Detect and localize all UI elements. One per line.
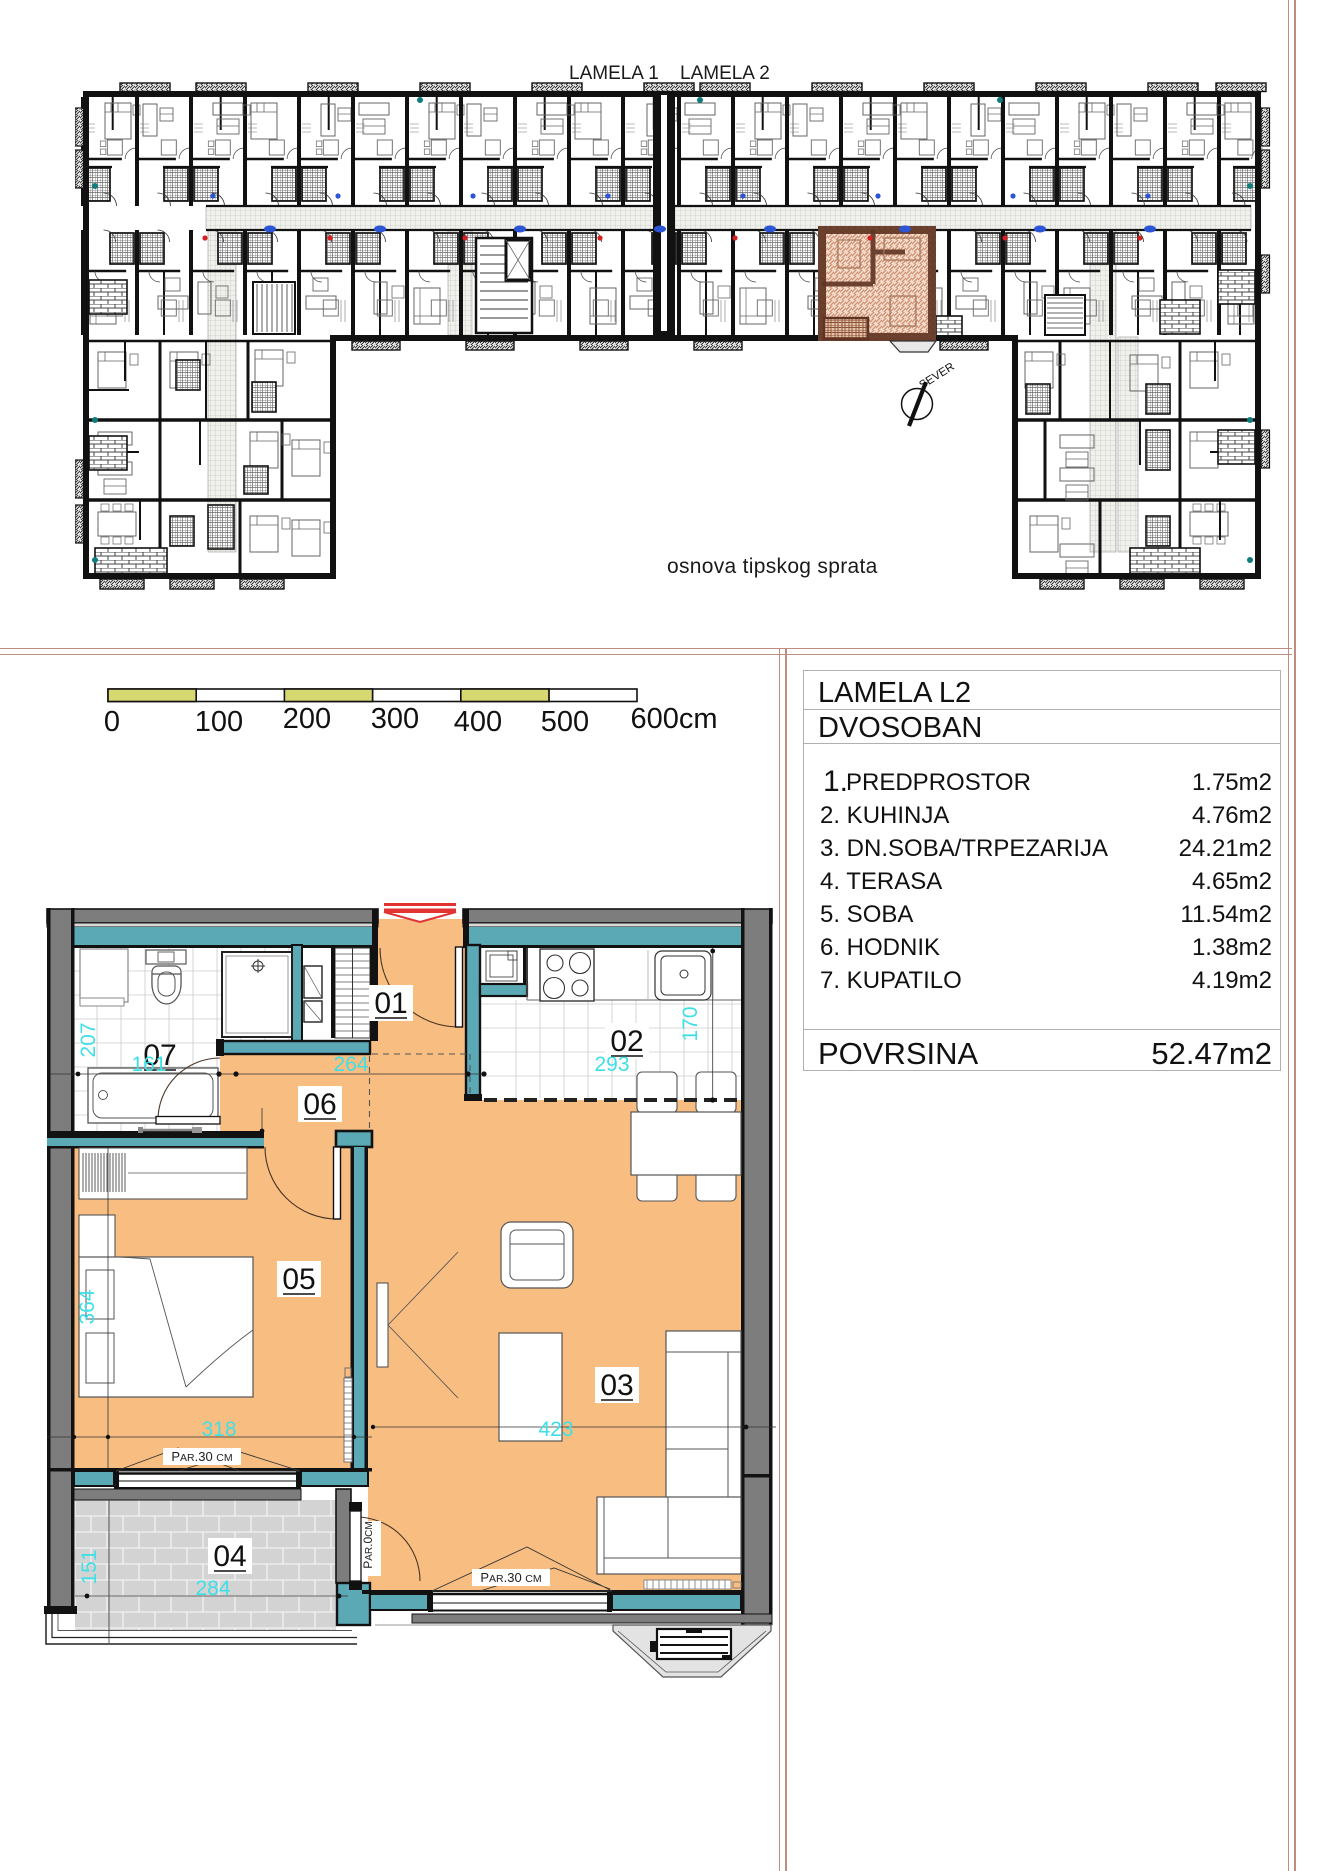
svg-text:100: 100 [195,706,243,738]
svg-text:170: 170 [679,1006,702,1041]
svg-text:318: 318 [201,1418,236,1441]
svg-text:293: 293 [594,1053,629,1076]
svg-text:0: 0 [104,706,120,738]
svg-text:06: 06 [303,1088,336,1121]
svg-text:PAR.30 CM: PAR.30 CM [171,1449,232,1464]
svg-text:161: 161 [131,1053,166,1076]
svg-text:03: 03 [600,1369,633,1402]
svg-text:200: 200 [283,703,331,735]
svg-text:423: 423 [538,1418,573,1441]
svg-text:364: 364 [76,1289,99,1324]
svg-text:PAR.0CM: PAR.0CM [361,1521,375,1569]
svg-text:600cm: 600cm [630,703,717,735]
svg-text:04: 04 [213,1540,246,1573]
svg-text:01: 01 [374,987,407,1020]
svg-text:400: 400 [454,706,502,738]
svg-text:151: 151 [78,1549,101,1584]
svg-text:284: 284 [195,1577,230,1600]
svg-text:05: 05 [282,1263,315,1296]
svg-text:264: 264 [333,1053,368,1076]
svg-text:207: 207 [77,1022,100,1057]
svg-text:300: 300 [371,703,419,735]
svg-text:SEVER: SEVER [917,361,956,392]
svg-text:500: 500 [541,706,589,738]
svg-text:PAR.30 CM: PAR.30 CM [480,1570,541,1585]
